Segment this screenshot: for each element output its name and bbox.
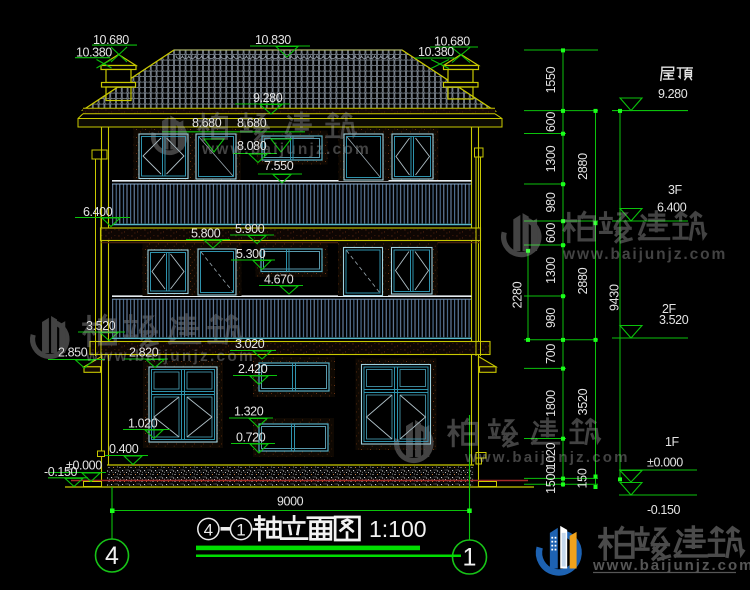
svg-text:2880: 2880 [576,153,590,180]
svg-text:1550: 1550 [544,66,558,93]
svg-text:www.baijunjz.com: www.baijunjz.com [201,141,371,158]
svg-text:980: 980 [544,308,558,328]
svg-text:1.020: 1.020 [128,417,158,431]
svg-text:980: 980 [544,192,558,212]
svg-text:www.baijunjz.com: www.baijunjz.com [562,246,727,263]
svg-text:7.550: 7.550 [264,159,294,173]
svg-text:1F: 1F [665,435,680,449]
svg-text:9430: 9430 [608,284,622,311]
svg-text:2280: 2280 [511,281,525,308]
svg-text:www.baijunjz.com: www.baijunjz.com [85,348,255,365]
svg-text:4: 4 [105,542,119,570]
svg-text:±0.000: ±0.000 [647,456,683,470]
svg-text:1:100: 1:100 [369,516,427,542]
svg-text:600: 600 [544,112,558,132]
svg-text:9.280: 9.280 [253,91,283,105]
svg-text:www.baijunjz.com: www.baijunjz.com [592,557,750,574]
svg-text:1300: 1300 [544,145,558,172]
svg-text:5.800: 5.800 [191,227,221,241]
svg-text:4: 4 [204,521,213,540]
svg-text:10.380: 10.380 [76,46,112,60]
svg-text:5.900: 5.900 [235,222,265,236]
svg-text:0.400: 0.400 [109,442,139,456]
svg-text:1300: 1300 [544,257,558,284]
svg-text:1: 1 [463,544,477,572]
svg-text:1: 1 [236,521,245,540]
svg-text:1800: 1800 [544,390,558,417]
svg-text:150: 150 [576,468,590,488]
svg-text:1500: 1500 [544,467,558,494]
svg-text:9.280: 9.280 [658,87,688,101]
svg-text:10.380: 10.380 [418,45,454,59]
svg-text:4.670: 4.670 [264,273,294,287]
svg-text:www.baijunjz.com: www.baijunjz.com [464,449,630,466]
svg-text:10.830: 10.830 [255,33,291,47]
svg-text:9000: 9000 [277,495,304,509]
svg-text:700: 700 [544,344,558,364]
svg-text:1.320: 1.320 [234,405,264,419]
svg-text:2880: 2880 [576,267,590,294]
svg-text:-0.150: -0.150 [647,503,680,517]
svg-text:3F: 3F [668,183,683,197]
svg-text:5.300: 5.300 [236,247,266,261]
svg-text:6.400: 6.400 [83,205,113,219]
svg-text:-0.150: -0.150 [44,465,77,479]
svg-text:0.720: 0.720 [236,431,266,445]
svg-text:3.520: 3.520 [659,313,689,327]
svg-text:3520: 3520 [576,388,590,415]
svg-text:600: 600 [544,223,558,243]
